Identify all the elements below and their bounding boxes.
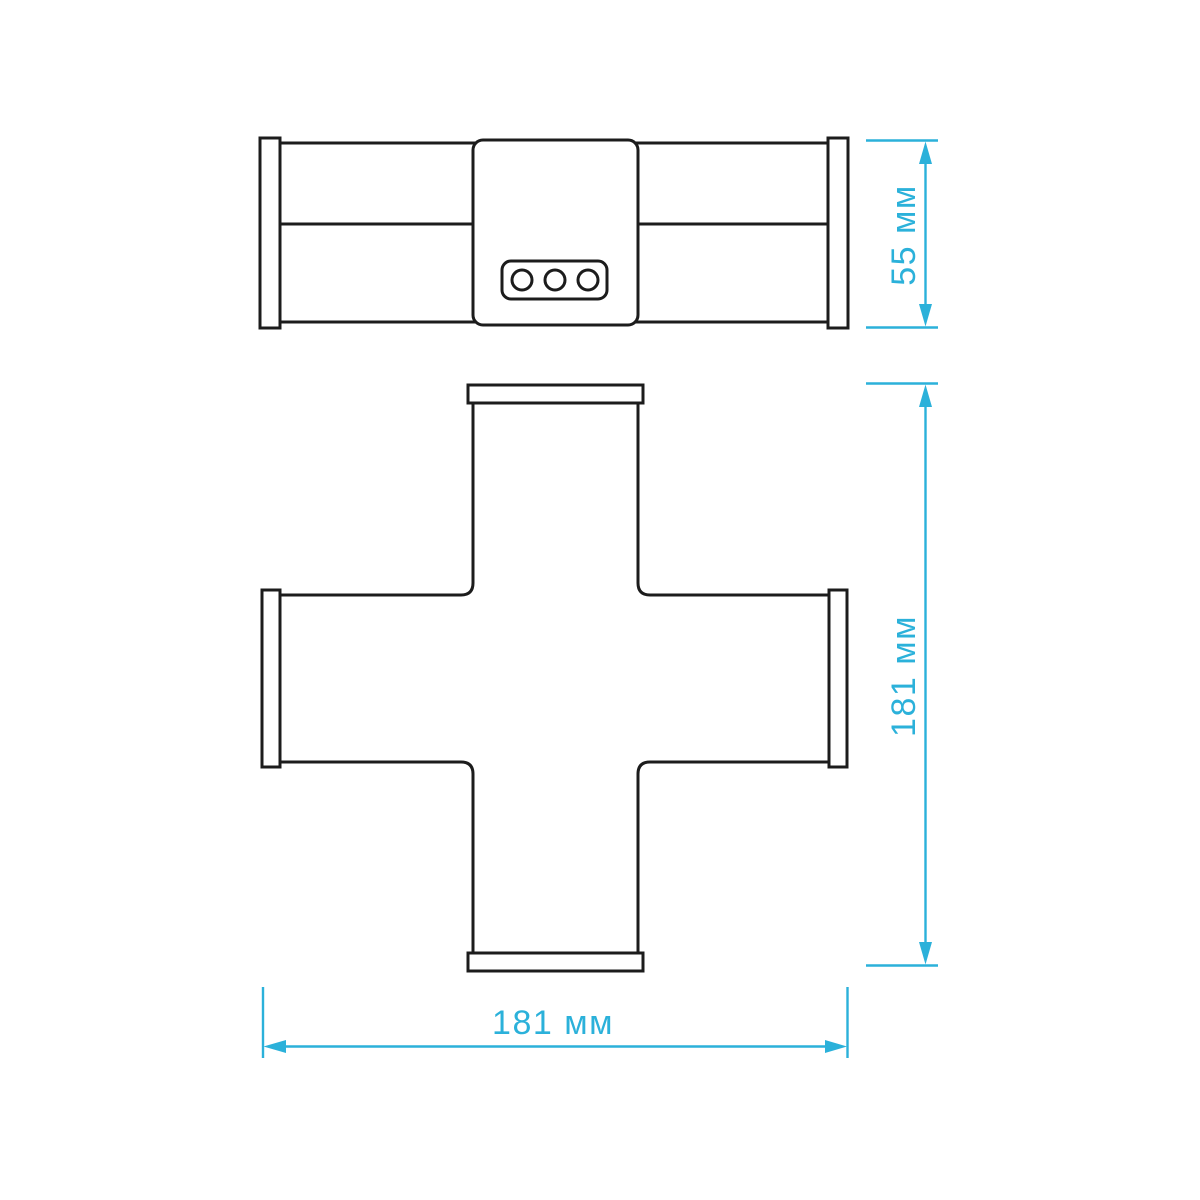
cross-top-endcap	[468, 385, 643, 403]
side-view-right-endcap	[828, 138, 848, 328]
connector-port-2-icon	[545, 270, 565, 290]
cross-bottom-endcap	[468, 953, 643, 971]
dimension-plan-width: 181 мм	[263, 987, 848, 1058]
blueprint-canvas: 55 мм 181 мм 181 мм	[0, 0, 1200, 1200]
cross-body	[280, 395, 829, 958]
dimension-label-plan-height: 181 мм	[885, 615, 923, 737]
connector-port-1-icon	[512, 270, 532, 290]
dimension-plan-height: 181 мм	[866, 384, 938, 966]
arrow-right-icon	[825, 1040, 847, 1053]
dimension-label-plan-width: 181 мм	[492, 1004, 614, 1042]
dimension-side-height: 55 мм	[866, 141, 938, 328]
side-view-left-endcap	[260, 138, 280, 328]
cross-left-endcap	[262, 590, 280, 767]
plan-view	[262, 385, 847, 971]
dimension-label-side-height: 55 мм	[885, 184, 923, 286]
technical-drawing: 55 мм 181 мм 181 мм	[0, 0, 1200, 1200]
arrow-left-icon	[264, 1040, 287, 1053]
arrow-down-icon	[919, 304, 932, 327]
connector-port-3-icon	[578, 270, 598, 290]
arrow-up-icon	[919, 385, 932, 408]
cross-right-endcap	[829, 590, 847, 767]
arrow-down-icon	[919, 942, 932, 965]
arrow-up-icon	[919, 142, 932, 165]
side-view	[260, 138, 848, 328]
